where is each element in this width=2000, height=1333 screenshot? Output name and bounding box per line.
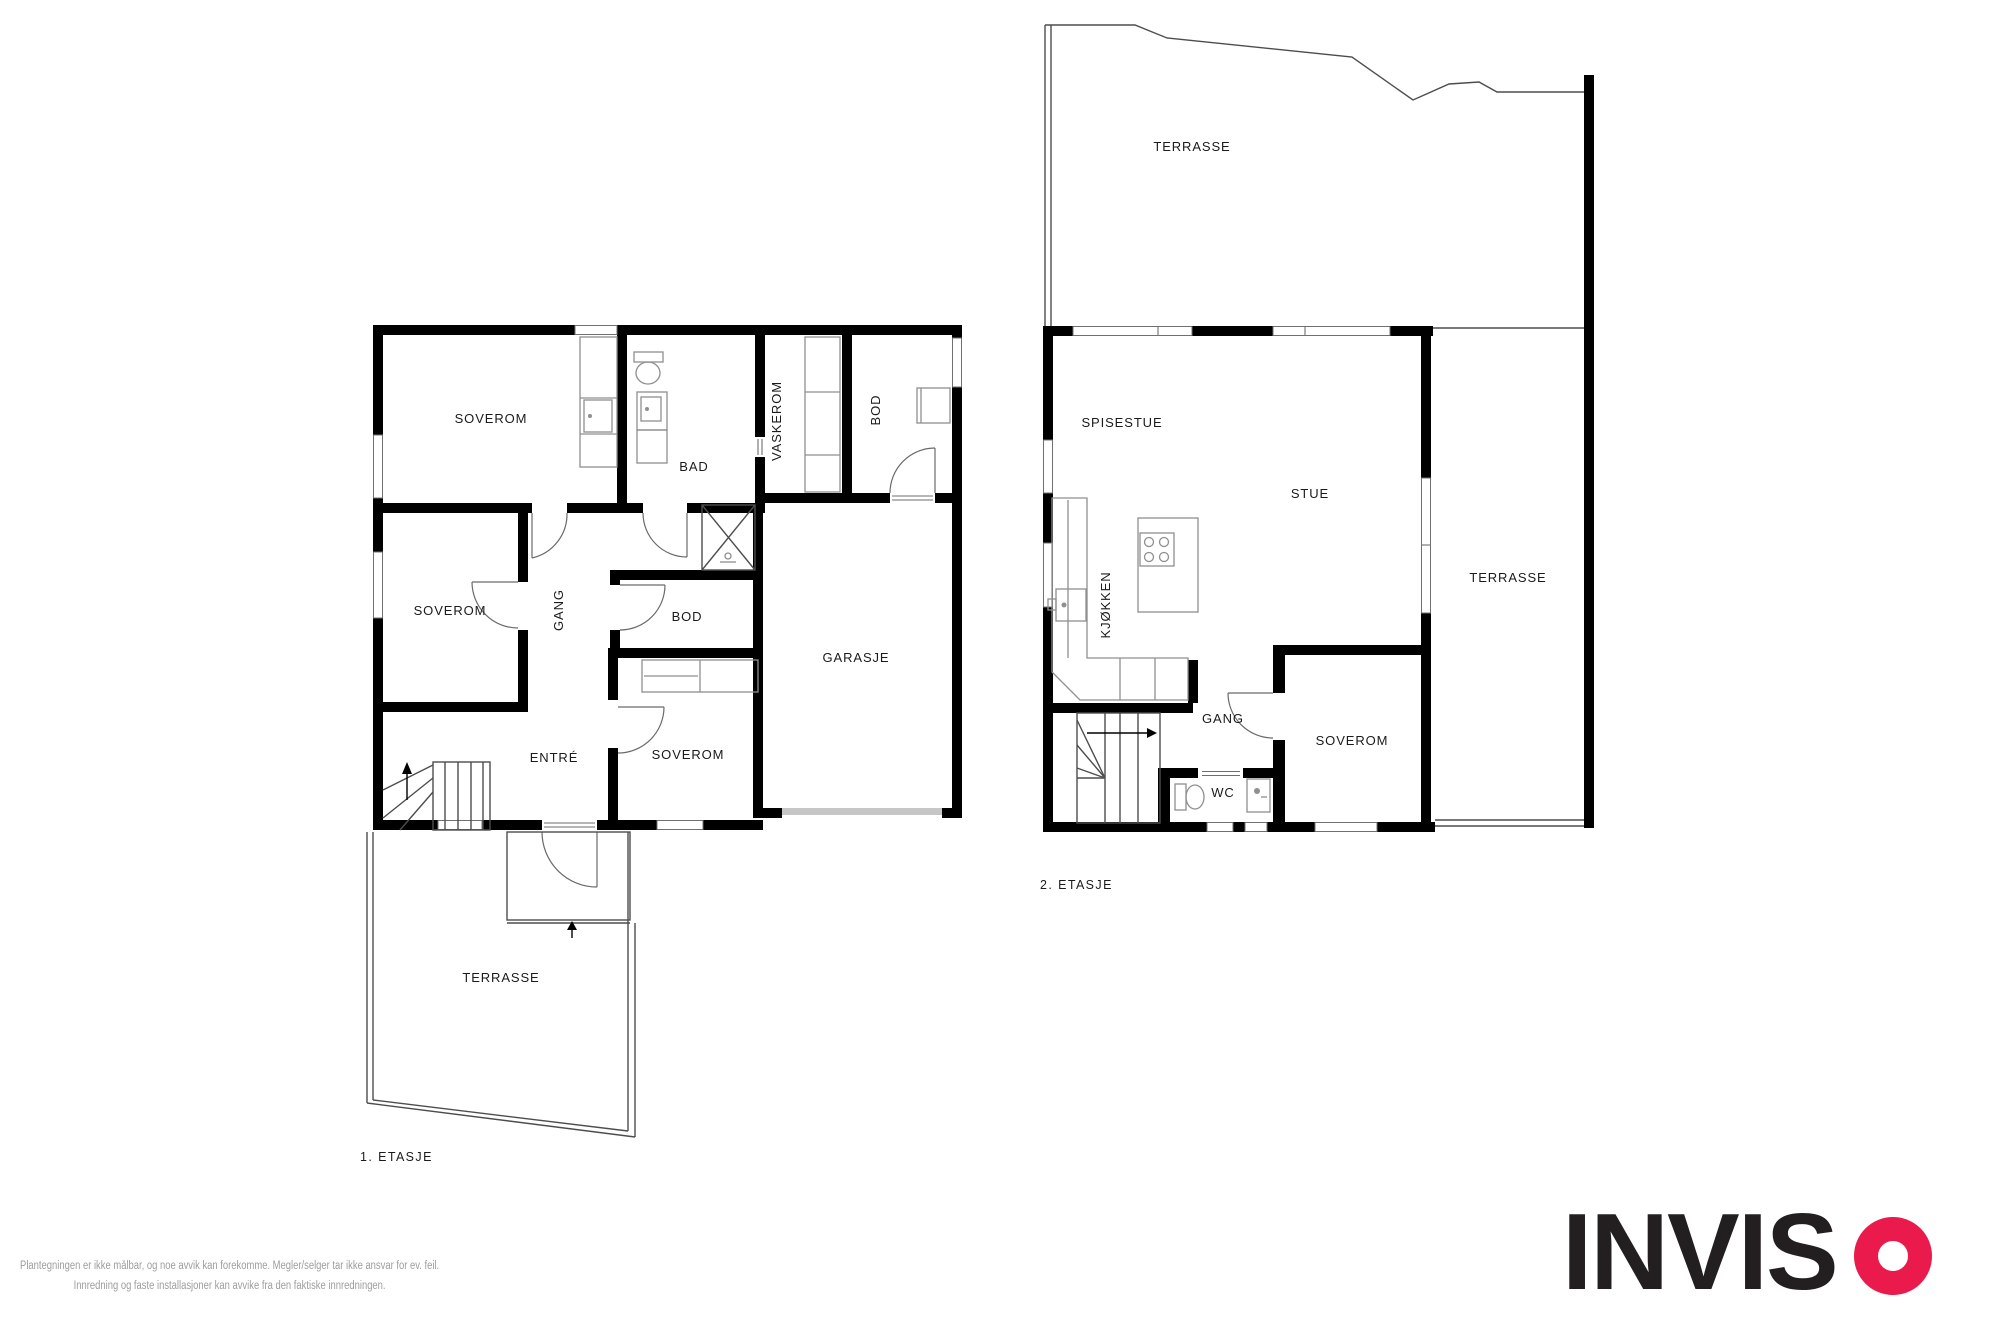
floor2-title: 2. ETASJE [1040,878,1113,892]
floor1-plan: SOVEROM BAD VASKEROM BOD SOVEROM GANG BO… [360,325,962,1164]
wardrobe-icon-soverom3 [642,660,758,692]
stairs-direction-arrow [1147,728,1157,738]
inviso-logo: INVIS [1562,1198,1837,1298]
room-label-bod-top: BOD [868,395,883,426]
floorplan-page: SOVEROM BAD VASKEROM BOD SOVEROM GANG BO… [0,0,2000,1333]
disclaimer-line2: Innredning og faste installasjoner kan a… [0,1276,459,1296]
sink-cabinet-icon-bad [637,392,667,463]
floor2-walls [1043,75,1594,832]
stairs-icon-floor2 [1077,713,1160,823]
kitchen-island-stove-icon [1138,518,1198,612]
room-label-soverom1: SOVEROM [455,411,528,426]
shower-icon [702,505,755,570]
logo-o-ring [1854,1217,1932,1295]
room-label-gang1: GANG [551,589,566,631]
room-label-entre: ENTRÉ [530,750,579,765]
kitchen-sink-icon [1048,589,1086,621]
room-label-soverom2: SOVEROM [414,603,487,618]
toilet-icon-bad [634,352,663,384]
washer-closet-icon-vaskerom [805,337,840,492]
stairs-up-arrow [402,762,412,774]
garage-door [782,808,942,818]
door-arc-soverom1 [532,513,567,558]
floor1-title: 1. ETASJE [360,1150,433,1164]
floor2-labels: TERRASSE SPISESTUE STUE KJØKKEN GANG SOV… [1040,139,1547,892]
room-label-bad: BAD [679,459,708,474]
disclaimer-line1: Plantegningen er ikke målbar, og noe avv… [0,1256,459,1276]
room-label-kjokken: KJØKKEN [1098,572,1113,639]
room-label-spisestue: SPISESTUE [1081,415,1162,430]
porch-outline [507,832,630,938]
floorplan-canvas: SOVEROM BAD VASKEROM BOD SOVEROM GANG BO… [0,0,2000,1333]
kitchen-counter-icon [1052,498,1188,700]
door-arc-bad [643,513,687,557]
room-label-soverom3: SOVEROM [652,747,725,762]
room-label-garasje: GARASJE [823,650,890,665]
stairs-icon-floor1 [383,762,490,830]
door-arc-entrance [542,832,597,887]
floor2-door-openings [1198,693,1285,778]
room-label-soverom-2f: SOVEROM [1316,733,1389,748]
door-arc-bod-mid [620,585,665,630]
room-label-terrasse-top: TERRASSE [1153,139,1230,154]
floor2-plan: TERRASSE SPISESTUE STUE KJØKKEN GANG SOV… [1040,25,1594,892]
door-arc-bod-top [890,448,935,493]
room-label-terrasse-right: TERRASSE [1469,570,1546,585]
disclaimer-text: Plantegningen er ikke målbar, og noe avv… [0,1256,459,1296]
room-label-vaskerom: VASKEROM [769,381,784,461]
toilet-icon-wc [1175,784,1204,810]
room-label-terrasse1: TERRASSE [462,970,539,985]
room-label-stue: STUE [1291,486,1329,501]
room-label-bod-mid: BOD [672,609,703,624]
shelf-icon-bod-top [917,388,950,423]
sink-icon-wc [1247,779,1270,812]
wardrobe-icon-soverom1 [580,337,617,467]
logo-letters: INVIS [1562,1191,1837,1313]
room-label-gang2: GANG [1202,711,1244,726]
room-label-wc: WC [1211,785,1234,800]
